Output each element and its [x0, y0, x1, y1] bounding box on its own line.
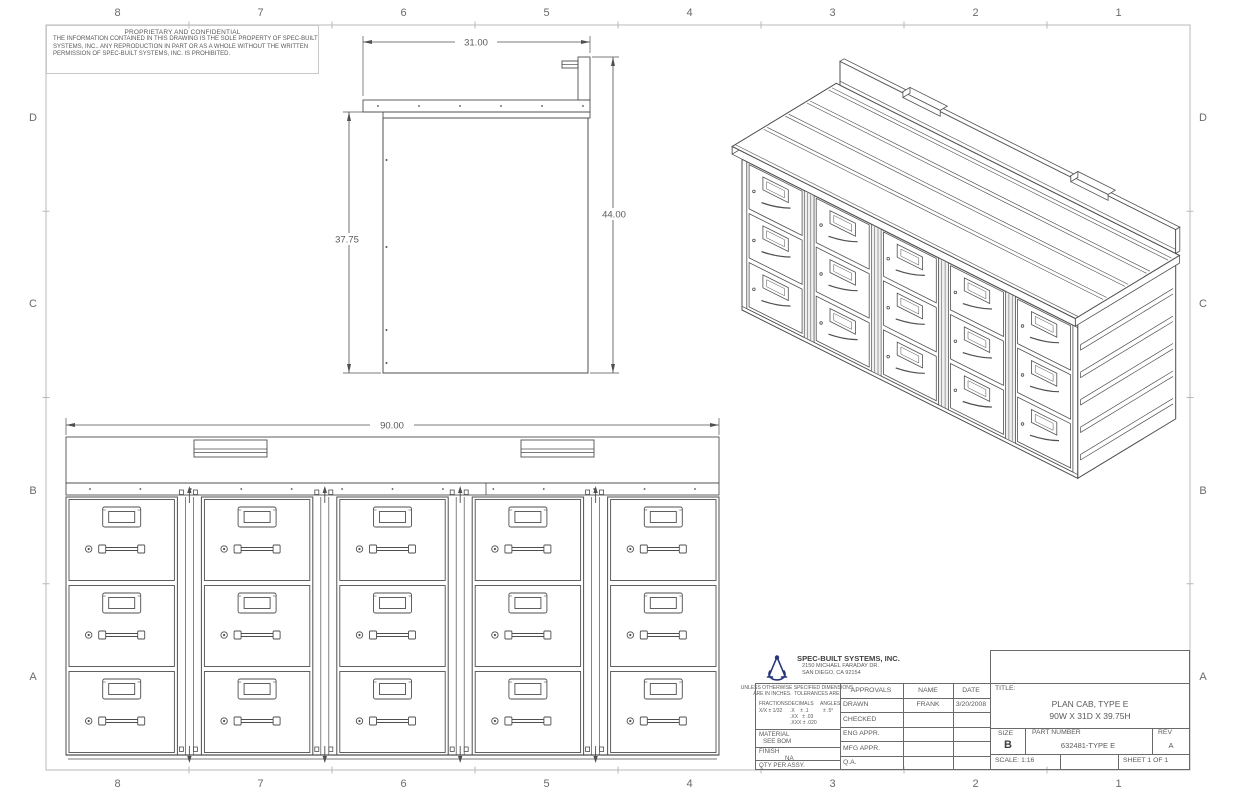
handle-end [99, 545, 106, 553]
separator-arrow-up [458, 486, 462, 493]
iso-separator [871, 224, 881, 376]
zone-label-left-C: C [29, 298, 37, 310]
sheet-text: SHEET 1 OF 1 [1123, 758, 1168, 765]
separator-bolt [315, 490, 319, 495]
zone-label-top-6: 6 [400, 7, 406, 19]
separator-arrow-down [458, 756, 462, 763]
dim-side-total-height: 44.00 [602, 210, 626, 221]
fastener-dot [644, 488, 646, 490]
title-block-line [755, 683, 756, 770]
zone-label-bottom-2: 2 [972, 778, 978, 790]
cabinet-column [66, 497, 177, 755]
slide-mark [386, 329, 388, 331]
zone-label-top-5: 5 [543, 7, 549, 19]
proprietary-line: SYSTEMS, INC.. ANY REPRODUCTION IN PART … [53, 44, 312, 52]
backsplash-band [66, 437, 719, 483]
drawer-label-card [380, 512, 406, 523]
top-handle-slot [521, 440, 594, 457]
zone-label-top-8: 8 [114, 7, 120, 19]
part-number-label: PART NUMBER [1032, 730, 1081, 737]
dim-arrow [581, 40, 590, 44]
handle-end [679, 545, 686, 553]
fastener-dot [541, 105, 543, 107]
cabinet-column [337, 497, 448, 755]
title-label: TITLE: [995, 686, 1015, 693]
drawer-label-card [515, 598, 541, 609]
handle-end [273, 717, 280, 725]
lock-core [629, 548, 631, 550]
lock-core [223, 548, 225, 550]
title-block-line [1152, 728, 1153, 754]
cabinet-body-profile [383, 118, 588, 373]
cabinet-column [608, 497, 719, 755]
fastener-dot [442, 488, 444, 490]
zone-label-bottom-7: 7 [257, 778, 263, 790]
backsplash-profile [578, 57, 590, 100]
proprietary-notice: PROPRIETARY AND CONFIDENTIAL THE INFORMA… [46, 25, 319, 74]
handle-end [505, 545, 512, 553]
approvals-header-date: DATE [962, 688, 980, 695]
drawer-label-card [650, 684, 676, 695]
dim-arrow [710, 423, 719, 427]
dim-arrow [347, 364, 351, 373]
lock-core [358, 548, 360, 550]
drawer-label-card [244, 598, 270, 609]
lock-core [88, 634, 90, 636]
drawer-label-card [244, 512, 270, 523]
handle-end [544, 717, 551, 725]
zone-label-top-2: 2 [972, 7, 978, 19]
zone-label-left-B: B [29, 485, 36, 497]
handle-end [544, 545, 551, 553]
title-block-line [1060, 754, 1061, 770]
handle-end [273, 545, 280, 553]
slide-mark [386, 362, 388, 364]
dim-arrow [363, 40, 372, 44]
title-block-line [1025, 728, 1026, 754]
fastener-dot [543, 488, 545, 490]
title-block-line [990, 650, 1190, 651]
handle-end [409, 631, 416, 639]
lock-core [629, 720, 631, 722]
zone-label-bottom-6: 6 [400, 778, 406, 790]
title-block-line [755, 769, 1190, 770]
separator-bolt [329, 747, 333, 752]
fastener-dot [582, 105, 584, 107]
iso-separator [804, 191, 814, 343]
drawing-sheet: 31.00 37.75 44.00 90.00 8877665544332211… [0, 0, 1237, 800]
worktop-edge [363, 100, 590, 112]
handle-end [370, 545, 377, 553]
dim-arrow [347, 112, 351, 121]
handle-end [234, 631, 241, 639]
handle-end [99, 631, 106, 639]
fastener-dot [291, 488, 293, 490]
drawer-label-card [244, 684, 270, 695]
approval-row-label: MFG APPR. [843, 746, 880, 753]
handle-end [370, 631, 377, 639]
company-address: SAN DIEGO, CA 92154 [802, 671, 861, 677]
separator-arrow-up [323, 486, 327, 493]
approvals-header-name: NAME [918, 688, 938, 695]
slide-mark [386, 246, 388, 248]
drawer-label-card [515, 684, 541, 695]
iso-separator [939, 258, 949, 410]
handle-end [640, 717, 647, 725]
approval-row-label: Q.A. [843, 760, 857, 767]
dim-arrow [611, 364, 615, 373]
separator-arrow-down [323, 756, 327, 763]
zone-label-right-B: B [1199, 485, 1206, 497]
drawer-label-card [109, 598, 135, 609]
compass-hinge [775, 655, 779, 659]
handle-end [138, 717, 145, 725]
decimals-label: DECIMALS [788, 702, 814, 707]
front-view [66, 418, 719, 763]
lock-core [88, 548, 90, 550]
qty-per-assy-label: QTY PER ASSY. [759, 763, 805, 769]
fastener-dot [240, 488, 242, 490]
handle-end [679, 631, 686, 639]
fastener-dot [377, 105, 379, 107]
separator-bolt [464, 490, 468, 495]
separator-bolt [315, 747, 319, 752]
drawer-label-card [515, 512, 541, 523]
title-block-line [840, 712, 990, 713]
approval-row-date: 3/20/2008 [956, 702, 986, 709]
title-block: SPEC-BUILT SYSTEMS, INC. 2150 MICHAEL FA… [755, 650, 1190, 770]
fastener-dot [492, 488, 494, 490]
cabinet-column [472, 497, 583, 755]
zone-label-bottom-4: 4 [686, 778, 692, 790]
lock-core [629, 634, 631, 636]
drawer-label-card [109, 684, 135, 695]
handle-end [640, 631, 647, 639]
lock-core [358, 720, 360, 722]
title-block-line [1189, 650, 1190, 770]
title-block-line [755, 760, 840, 761]
fractions-label: FRACTIONS [759, 702, 788, 707]
material-value: SEE BOM [763, 739, 791, 745]
separator-bolt [450, 490, 454, 495]
fastener-dot [459, 105, 461, 107]
iso-backsplash-end [1176, 227, 1180, 253]
separator-arrow-down [187, 756, 191, 763]
handle-end [234, 545, 241, 553]
fastener-dot [500, 105, 502, 107]
zone-label-top-7: 7 [257, 7, 263, 19]
compass-leg [777, 657, 785, 676]
zone-label-top-1: 1 [1115, 7, 1121, 19]
separator-bolt [179, 490, 183, 495]
isometric-view [732, 59, 1180, 479]
decimals-value: .XXX ± .020 [790, 721, 817, 726]
separator-bolt [179, 747, 183, 752]
separator-bolt [193, 747, 197, 752]
zone-label-bottom-1: 1 [1115, 778, 1121, 790]
handle-end [138, 545, 145, 553]
angles-label: ANGLES [820, 702, 840, 707]
compass-icon [763, 653, 791, 681]
zone-label-right-C: C [1199, 298, 1207, 310]
fastener-dot [89, 488, 91, 490]
cabinet-column [201, 497, 312, 755]
zone-label-bottom-3: 3 [829, 778, 835, 790]
zone-label-right-D: D [1199, 112, 1207, 124]
handle-end [505, 631, 512, 639]
fastener-dot [341, 488, 343, 490]
lock-core [88, 720, 90, 722]
handle-end [505, 717, 512, 725]
finish-label: FINISH [759, 749, 779, 755]
approval-row-label: ENG APPR. [843, 731, 880, 738]
zone-label-top-3: 3 [829, 7, 835, 19]
drawing-title: PLAN CAB, TYPE E [1052, 700, 1129, 709]
size-value: B [1004, 740, 1012, 751]
separator-bolt [329, 490, 333, 495]
handle-end [99, 717, 106, 725]
dim-side-top-width: 31.00 [464, 38, 488, 49]
handle-end [409, 717, 416, 725]
company-name: SPEC-BUILT SYSTEMS, INC. [797, 655, 900, 663]
general-note: ARE IN INCHES. TOLERANCES ARE: [753, 692, 841, 697]
title-block-line [840, 741, 990, 742]
separator-bolt [450, 747, 454, 752]
zone-label-right-A: A [1199, 671, 1206, 683]
fractions-value: X/X ± 1/32 [759, 709, 782, 714]
handle-end [640, 545, 647, 553]
approval-row-label: DRAWN [843, 702, 868, 709]
drawer-label-card [650, 512, 676, 523]
lock-core [494, 634, 496, 636]
iso-separator [1006, 292, 1016, 444]
zone-label-left-D: D [29, 112, 37, 124]
handle-end [138, 631, 145, 639]
separator-bolt [600, 747, 604, 752]
company-address: 2150 MICHAEL FARADAY DR. [802, 664, 879, 670]
separator-bolt [586, 490, 590, 495]
title-block-line [755, 683, 1190, 684]
lock-core [358, 634, 360, 636]
compass-leg [769, 657, 777, 676]
title-block-line [990, 754, 1190, 755]
approvals-header: APPROVALS [851, 688, 892, 695]
separator-bolt [600, 490, 604, 495]
handle-end [679, 717, 686, 725]
scale-text: SCALE: 1:16 [995, 758, 1034, 765]
size-label: SIZE [998, 731, 1013, 738]
dim-arrow [66, 423, 75, 427]
zone-label-bottom-8: 8 [114, 778, 120, 790]
handle-end [370, 717, 377, 725]
separator-bolt [586, 747, 590, 752]
fastener-dot [140, 488, 142, 490]
slide-mark [386, 159, 388, 161]
dim-arrow [611, 57, 615, 66]
handle-end [234, 717, 241, 725]
drawer-label-card [380, 684, 406, 695]
fastener-dot [418, 105, 420, 107]
title-block-line [840, 727, 990, 728]
zone-label-bottom-5: 5 [543, 778, 549, 790]
title-block-line [840, 698, 990, 699]
handle-end [544, 631, 551, 639]
title-block-line [990, 650, 991, 770]
handle-end [273, 631, 280, 639]
title-block-line [1118, 754, 1119, 770]
approval-row-label: CHECKED [843, 717, 876, 724]
separator-bolt [193, 490, 197, 495]
drawer-label-card [650, 598, 676, 609]
zone-label-top-4: 4 [686, 7, 692, 19]
drawer-label-card [109, 512, 135, 523]
lock-core [494, 720, 496, 722]
drawer-label-card [380, 598, 406, 609]
handle-end [409, 545, 416, 553]
proprietary-heading: PROPRIETARY AND CONFIDENTIAL [53, 29, 312, 36]
rev-value: A [1168, 742, 1173, 750]
proprietary-line: PERMISSION OF SPEC-BUILT SYSTEMS, INC. I… [53, 51, 312, 59]
proprietary-line: THE INFORMATION CONTAINED IN THIS DRAWIN… [53, 36, 312, 44]
top-handle-slot [194, 440, 267, 457]
separator-arrow-down [593, 756, 597, 763]
side-view [343, 36, 619, 373]
title-block-line [755, 729, 840, 730]
part-number-value: 632481-TYPE E [1061, 742, 1115, 750]
dim-front-overall-width: 90.00 [380, 421, 404, 432]
rev-label: REV [1158, 730, 1172, 737]
dimension-labels: 31.00 37.75 44.00 90.00 [326, 37, 635, 432]
lock-core [494, 548, 496, 550]
lock-core [223, 720, 225, 722]
fastener-dot [392, 488, 394, 490]
title-block-line [990, 728, 1190, 729]
lock-core [223, 634, 225, 636]
title-block-line [755, 747, 840, 748]
angles-value: ± .5° [823, 709, 833, 714]
drawing-subtitle: 90W X 31D X 39.75H [1049, 712, 1130, 721]
zone-label-left-A: A [29, 671, 36, 683]
approval-row-name: FRANK [916, 702, 939, 709]
worktop-substrip [383, 112, 590, 118]
dim-side-body-height: 37.75 [335, 235, 359, 246]
title-block-line [840, 756, 990, 757]
fastener-dot [694, 488, 696, 490]
separator-bolt [464, 747, 468, 752]
